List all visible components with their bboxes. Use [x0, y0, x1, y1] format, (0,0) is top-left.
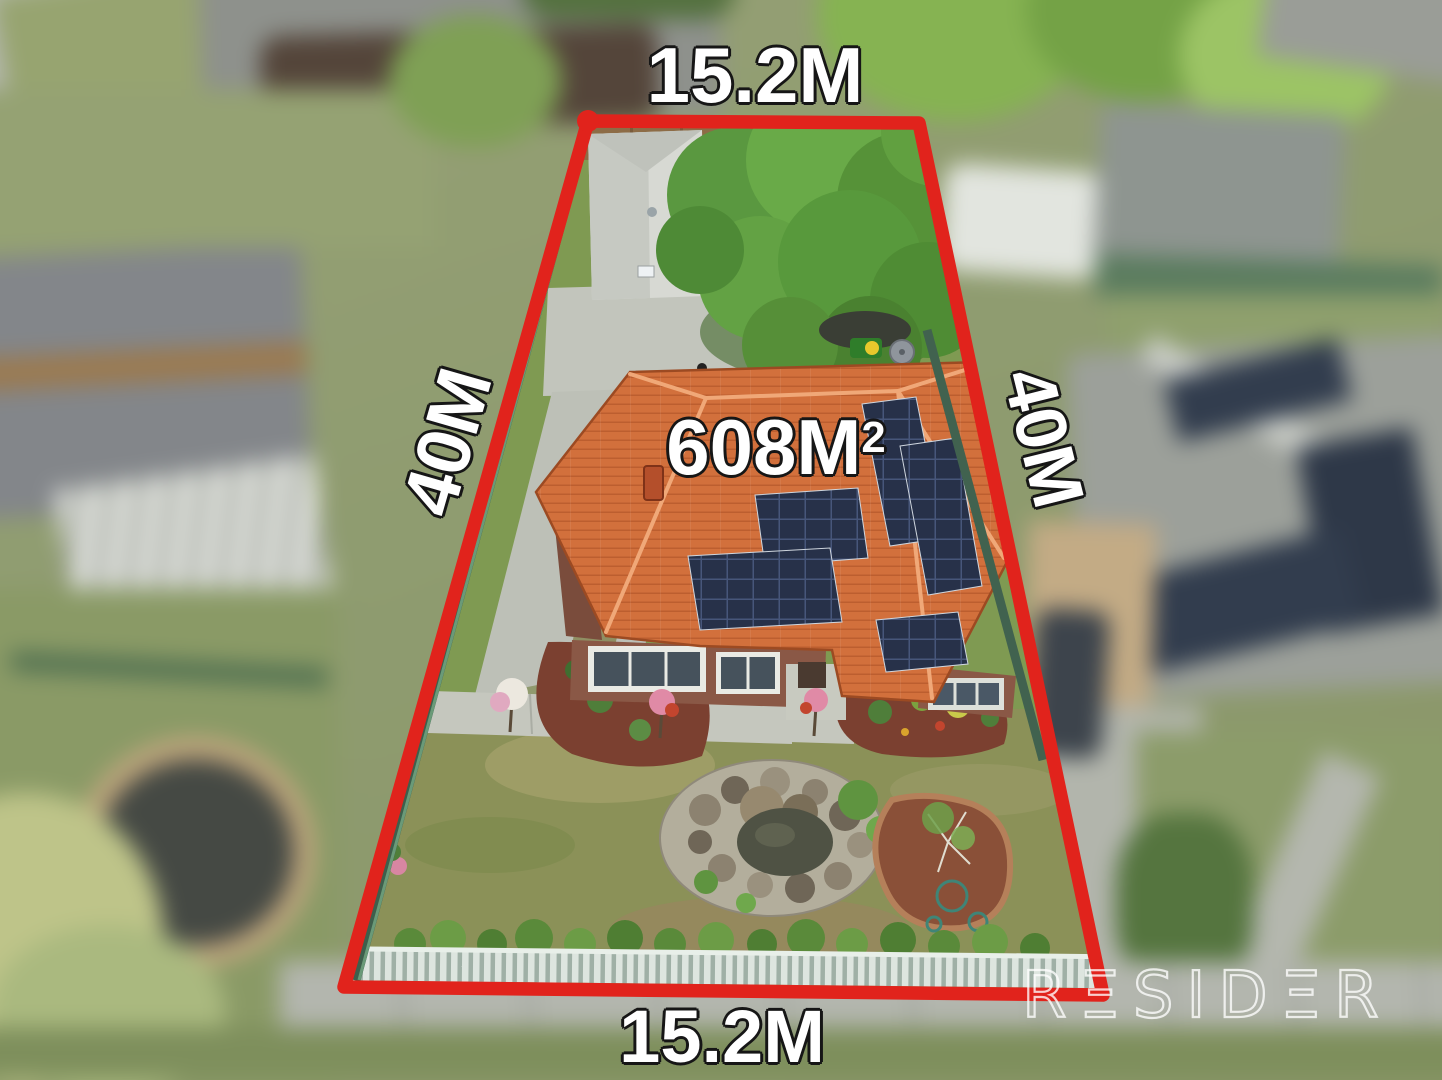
- dimension-label-top-width: 15.2M: [647, 36, 864, 114]
- dimension-label-bottom-width: 15.2M: [619, 1000, 825, 1074]
- boundary-corner-dot: [577, 110, 599, 132]
- property-boundary-line: [344, 121, 1103, 995]
- resider-watermark: RΞSIDΞR: [1022, 964, 1392, 1028]
- aerial-property-photo: 15.2M 40M 40M 608M2 15.2M RΞSIDΞR: [0, 0, 1442, 1080]
- land-area-value: 608M: [666, 403, 861, 491]
- boundary-overlay: [0, 0, 1442, 1080]
- land-area-label: 608M2: [666, 408, 885, 486]
- land-area-exponent: 2: [861, 413, 885, 462]
